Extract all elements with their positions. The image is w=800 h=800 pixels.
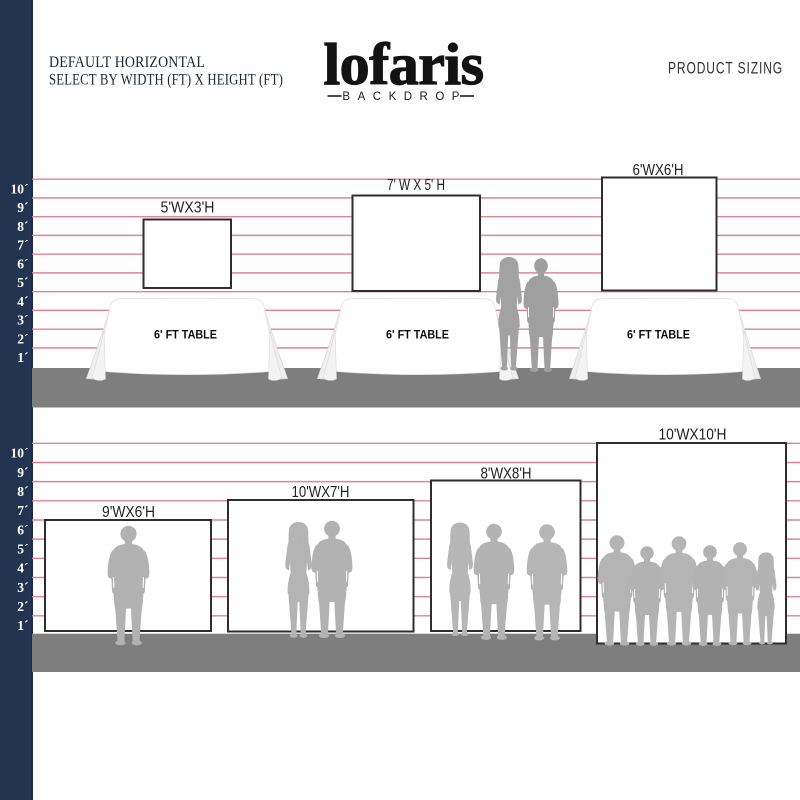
svg-text:8´: 8´ xyxy=(17,484,28,499)
svg-text:SELECT BY WIDTH (FT) X HEIGHT: SELECT BY WIDTH (FT) X HEIGHT (FT) xyxy=(49,72,283,89)
svg-text:10´: 10´ xyxy=(11,446,29,461)
svg-text:5´: 5´ xyxy=(17,275,28,290)
svg-text:6' FT TABLE: 6' FT TABLE xyxy=(386,328,449,342)
svg-text:9´: 9´ xyxy=(17,465,28,480)
svg-text:1´: 1´ xyxy=(17,350,28,365)
svg-text:lofaris: lofaris xyxy=(324,31,484,97)
svg-text:8´: 8´ xyxy=(17,219,28,234)
svg-text:6' FT TABLE: 6' FT TABLE xyxy=(627,328,690,342)
svg-text:BACKDROP: BACKDROP xyxy=(342,91,467,103)
svg-text:9´: 9´ xyxy=(17,200,28,215)
svg-text:2´: 2´ xyxy=(17,331,28,346)
svg-text:PRODUCT SIZING: PRODUCT SIZING xyxy=(668,60,783,78)
svg-text:4´: 4´ xyxy=(17,294,28,309)
svg-text:6´: 6´ xyxy=(17,256,28,271)
svg-text:5´: 5´ xyxy=(17,541,28,556)
svg-text:10´: 10´ xyxy=(11,181,29,196)
svg-text:3´: 3´ xyxy=(17,313,28,328)
svg-text:7´: 7´ xyxy=(17,503,28,518)
svg-text:10'WX7'H: 10'WX7'H xyxy=(292,484,350,501)
svg-text:4´: 4´ xyxy=(17,561,28,576)
svg-text:3´: 3´ xyxy=(17,580,28,595)
svg-text:5'WX3'H: 5'WX3'H xyxy=(161,200,215,217)
svg-text:6' FT TABLE: 6' FT TABLE xyxy=(154,328,217,342)
svg-text:7' W X 5' H: 7' W X 5' H xyxy=(387,177,445,194)
svg-text:6´: 6´ xyxy=(17,522,28,537)
svg-text:10'WX10'H: 10'WX10'H xyxy=(659,427,727,444)
svg-text:9'WX6'H: 9'WX6'H xyxy=(102,504,155,521)
svg-text:7´: 7´ xyxy=(17,238,28,253)
svg-text:2´: 2´ xyxy=(17,599,28,614)
svg-text:1´: 1´ xyxy=(17,618,28,633)
svg-text:DEFAULT HORIZONTAL: DEFAULT HORIZONTAL xyxy=(49,54,205,71)
